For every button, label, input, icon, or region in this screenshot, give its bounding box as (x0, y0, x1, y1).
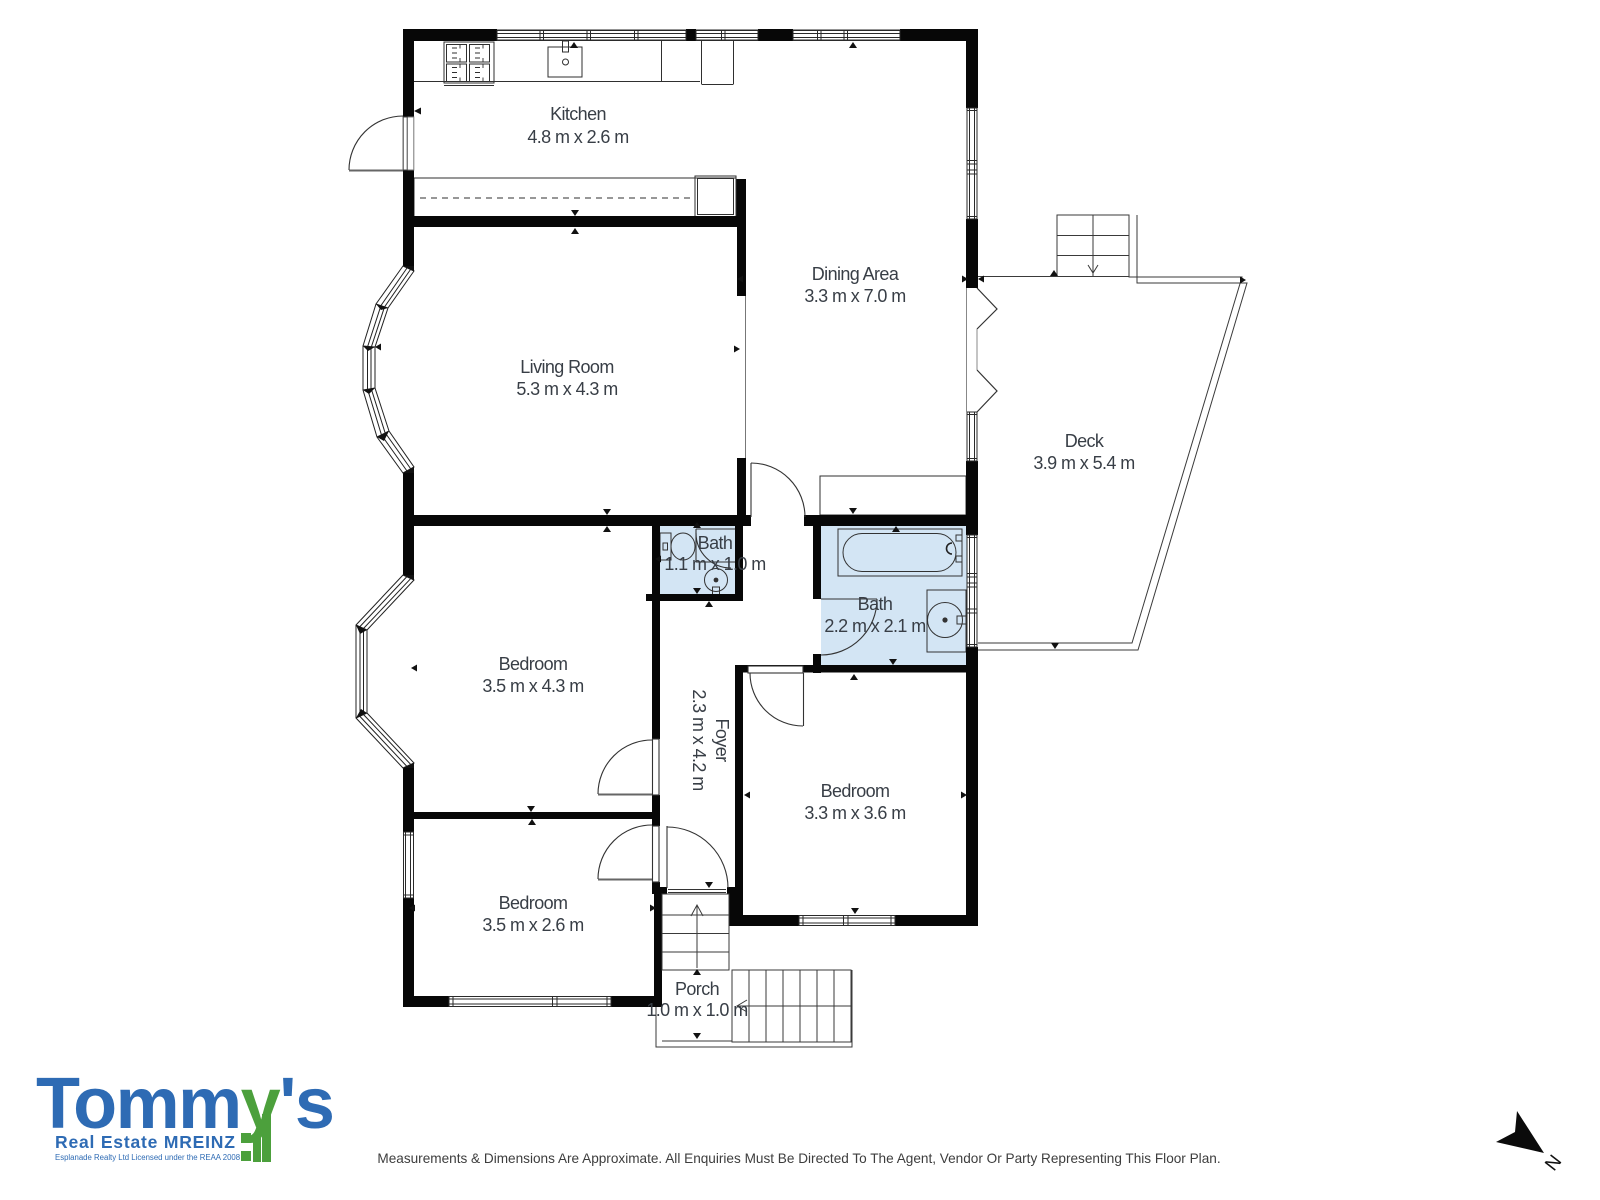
svg-text:Deck: Deck (1065, 431, 1105, 451)
svg-text:Dining Area: Dining Area (812, 264, 900, 284)
svg-text:Porch: Porch (675, 979, 719, 999)
svg-text:1.1 m x 1.0 m: 1.1 m x 1.0 m (664, 554, 765, 574)
svg-text:Foyer: Foyer (712, 718, 732, 762)
svg-text:3.5 m x 2.6 m: 3.5 m x 2.6 m (482, 915, 583, 935)
svg-text:Real Estate MREINZ: Real Estate MREINZ (55, 1132, 236, 1152)
svg-text:Kitchen: Kitchen (550, 104, 606, 124)
svg-text:1.0 m x 1.0 m: 1.0 m x 1.0 m (646, 1000, 747, 1020)
svg-text:Bath: Bath (698, 533, 733, 553)
svg-text:Esplanade Realty Ltd Licensed: Esplanade Realty Ltd Licensed under the … (55, 1153, 240, 1162)
svg-text:3.3 m x 3.6 m: 3.3 m x 3.6 m (804, 803, 905, 823)
svg-text:2.3 m x 4.2 m: 2.3 m x 4.2 m (689, 689, 709, 790)
svg-text:3.3 m x 7.0 m: 3.3 m x 7.0 m (804, 286, 905, 306)
svg-text:3.5 m x 4.3 m: 3.5 m x 4.3 m (482, 676, 583, 696)
svg-text:Bath: Bath (858, 594, 893, 614)
svg-text:Bedroom: Bedroom (499, 893, 568, 913)
svg-text:Living Room: Living Room (520, 357, 613, 377)
svg-text:Bedroom: Bedroom (499, 654, 568, 674)
svg-text:Measurements & Dimensions Are: Measurements & Dimensions Are Approximat… (377, 1151, 1220, 1166)
svg-text:5.3 m x 4.3 m: 5.3 m x 4.3 m (516, 379, 617, 399)
svg-text:4.8 m x 2.6 m: 4.8 m x 2.6 m (527, 127, 628, 147)
svg-text:Bedroom: Bedroom (821, 781, 890, 801)
svg-text:2.2 m x 2.1 m: 2.2 m x 2.1 m (824, 616, 925, 636)
svg-text:3.9 m x 5.4 m: 3.9 m x 5.4 m (1033, 453, 1134, 473)
